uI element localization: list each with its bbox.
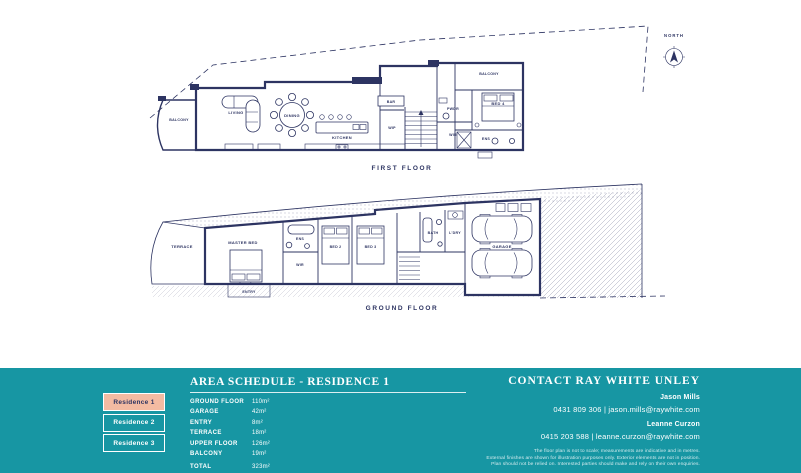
schedule-row: TERRACE 18m² bbox=[190, 430, 470, 436]
residence-3-button[interactable]: Residence 3 bbox=[103, 434, 165, 452]
contact-title: CONTACT RAY WHITE UNLEY bbox=[486, 375, 700, 387]
area-schedule: AREA SCHEDULE - RESIDENCE 1 GROUND FLOOR… bbox=[190, 376, 470, 473]
schedule-row: GROUND FLOOR 110m² bbox=[190, 399, 470, 405]
room-label-entry: ENTRY bbox=[242, 290, 256, 294]
schedule-row-value: 110m² bbox=[252, 399, 270, 405]
schedule-row-label: BALCONY bbox=[190, 451, 252, 457]
contact-block: CONTACT RAY WHITE UNLEY Jason Mills 0431… bbox=[486, 375, 700, 469]
floorplan-page: BALCONY LIVING DINING KITCHEN BAR WIP PW… bbox=[0, 0, 801, 473]
agent-phone-email: 0431 809 306 | jason.mills@raywhite.com bbox=[486, 405, 700, 414]
agent-name: Leanne Curzon bbox=[486, 421, 700, 428]
room-label-terrace: TERRACE bbox=[171, 244, 192, 249]
schedule-row-label: TERRACE bbox=[190, 430, 252, 436]
wall-chunk bbox=[158, 96, 166, 101]
schedule-row: UPPER FLOOR 126m² bbox=[190, 441, 470, 447]
car bbox=[472, 215, 532, 244]
wall-chunk bbox=[190, 84, 199, 90]
footer-band: Residence 1 Residence 2 Residence 3 AREA… bbox=[0, 368, 801, 473]
room-label-garage: GARAGE bbox=[492, 244, 511, 249]
room-label-ens-first: ENS bbox=[482, 137, 490, 141]
first-floor-title: FIRST FLOOR bbox=[372, 165, 433, 172]
room-label-balcony-left: BALCONY bbox=[169, 118, 189, 122]
schedule-row-value: 42m² bbox=[252, 409, 266, 415]
room-label-wir-ground: WIR bbox=[296, 263, 304, 267]
schedule-row-value: 126m² bbox=[252, 441, 270, 447]
room-label-bar: BAR bbox=[387, 100, 396, 104]
room-label-pwdr: PWDR bbox=[447, 107, 459, 111]
schedule-total-label: TOTAL bbox=[190, 464, 252, 470]
schedule-row: ENTRY 8m² bbox=[190, 420, 470, 426]
north-label: NORTH bbox=[664, 33, 684, 38]
ground-floor-plan: TERRACE MASTER BED ENS WIR ENTRY BED 2 B… bbox=[140, 178, 670, 318]
schedule-row: GARAGE 42m² bbox=[190, 409, 470, 415]
room-label-kitchen: KITCHEN bbox=[332, 135, 352, 140]
room-label-balcony-right: BALCONY bbox=[479, 72, 499, 76]
room-label-laundry: L'DRY bbox=[449, 231, 461, 235]
terrace-area bbox=[151, 222, 205, 284]
schedule-total-value: 323m² bbox=[252, 464, 270, 470]
room-label-wir: WIR bbox=[449, 133, 457, 137]
schedule-row-label: UPPER FLOOR bbox=[190, 441, 252, 447]
title-divider bbox=[190, 392, 466, 393]
schedule-row-value: 19m² bbox=[252, 451, 266, 457]
wall-chunk bbox=[352, 77, 382, 84]
schedule-row-label: GROUND FLOOR bbox=[190, 399, 252, 405]
disclaimer-line: Plan should not be relied on. Interested… bbox=[486, 462, 700, 469]
first-floor-plan: BALCONY LIVING DINING KITCHEN BAR WIP PW… bbox=[140, 20, 710, 185]
schedule-row-label: ENTRY bbox=[190, 420, 252, 426]
schedule-total-row: TOTAL 323m² bbox=[190, 464, 470, 470]
room-label-dining: DINING bbox=[284, 113, 300, 118]
room-label-ens-ground: ENS bbox=[296, 237, 304, 241]
residence-selector: Residence 1 Residence 2 Residence 3 bbox=[103, 393, 165, 455]
master-bed-furniture bbox=[230, 250, 262, 282]
residence-2-button[interactable]: Residence 2 bbox=[103, 414, 165, 432]
disclaimer: The floor plan is not to scale; measurem… bbox=[486, 449, 700, 469]
residence-1-button[interactable]: Residence 1 bbox=[103, 393, 165, 411]
car bbox=[472, 249, 532, 278]
room-label-wip: WIP bbox=[388, 126, 396, 130]
disclaimer-line: The floor plan is not to scale; measurem… bbox=[486, 449, 700, 456]
room-label-bed4: BED 4 bbox=[491, 101, 505, 106]
schedule-row-label: GARAGE bbox=[190, 409, 252, 415]
room-label-bath: BATH bbox=[428, 231, 439, 235]
north-compass: NORTH bbox=[663, 33, 685, 68]
balcony-left-outline bbox=[158, 100, 197, 150]
area-schedule-title: AREA SCHEDULE - RESIDENCE 1 bbox=[190, 376, 470, 388]
room-label-bed2: BED 2 bbox=[330, 245, 342, 249]
room-label-living: LIVING bbox=[228, 110, 243, 115]
schedule-row: BALCONY 19m² bbox=[190, 451, 470, 457]
compass-needle-icon bbox=[670, 51, 678, 63]
room-label-master-bed: MASTER BED bbox=[228, 240, 257, 245]
schedule-row-value: 8m² bbox=[252, 420, 263, 426]
wall-chunk bbox=[428, 60, 439, 66]
schedule-row-value: 18m² bbox=[252, 430, 266, 436]
driveway-area bbox=[540, 190, 642, 298]
agent-name: Jason Mills bbox=[486, 394, 700, 401]
ground-floor-title: GROUND FLOOR bbox=[366, 305, 439, 312]
agent-phone-email: 0415 203 588 | leanne.curzon@raywhite.co… bbox=[486, 432, 700, 441]
room-label-bed3: BED 3 bbox=[365, 245, 377, 249]
